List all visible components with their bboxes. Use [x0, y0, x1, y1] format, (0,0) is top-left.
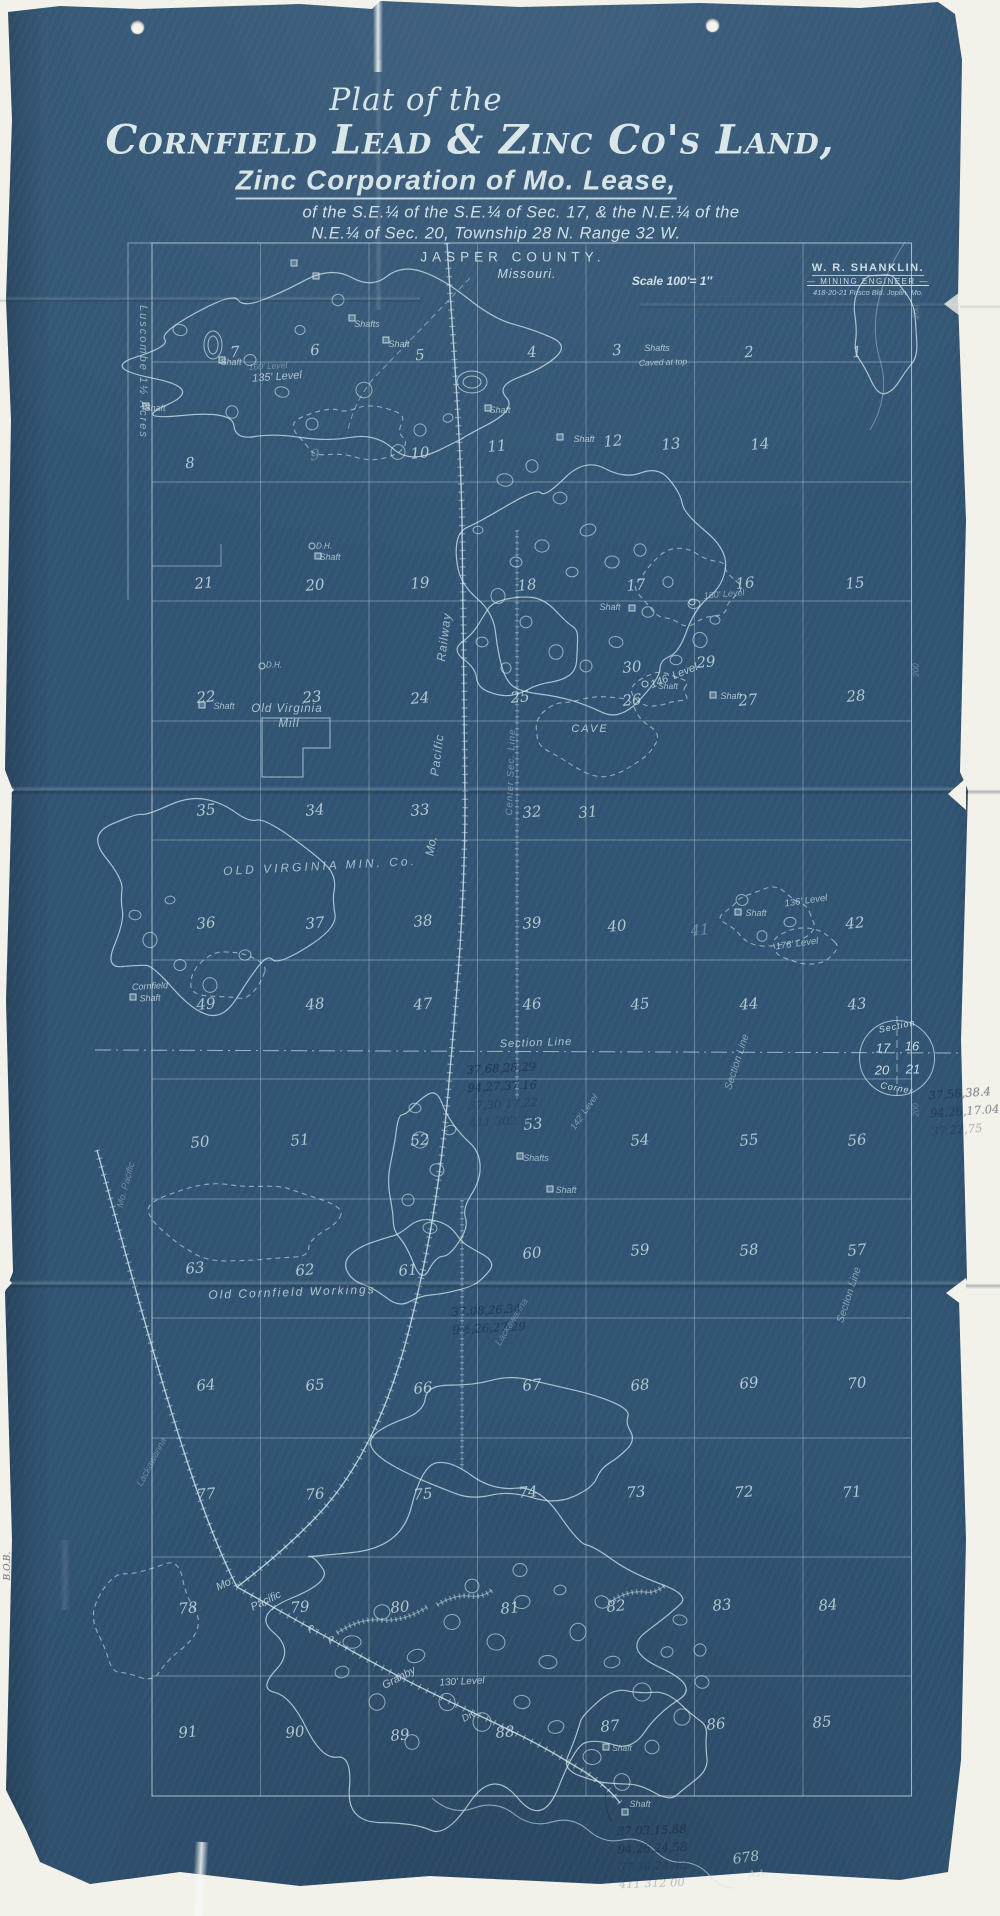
shaft-marker [291, 260, 298, 267]
map-label: Cornfield [132, 980, 169, 992]
map-title-prefix: Plat of the [329, 82, 502, 118]
map-label: Shafts [523, 1153, 549, 1163]
map-label: 160' Level [249, 360, 288, 372]
plot-number: 72 [734, 1482, 755, 1502]
shaft-marker [199, 702, 206, 709]
plot-number: 77 [196, 1484, 217, 1504]
shaft-marker [622, 1809, 629, 1816]
spine-pencil-mark: B.O.B. [2, 1552, 16, 1581]
plot-number: 84 [818, 1595, 839, 1615]
plot-number: 56 [847, 1130, 868, 1150]
plot-number: 81 [500, 1598, 521, 1618]
pencil-note: 37,08,26.349½,26,27,29 [451, 1300, 526, 1339]
map-label: D.H. [316, 542, 332, 551]
engineer-address: 418-20-21 Frisco Bld. Joplin, Mo. [778, 288, 958, 297]
map-label: Shaft [489, 405, 510, 415]
pencil-note-line: 411 312 00 [619, 1874, 689, 1894]
shaft-marker [517, 1153, 524, 1160]
plot-number: 24 [410, 688, 431, 708]
shaft-marker [603, 1744, 610, 1751]
plot-number: 91 [178, 1722, 199, 1742]
plot-number: 34 [305, 800, 326, 820]
plot-number: 44 [739, 994, 760, 1014]
shaft-marker [219, 357, 226, 364]
plot-number: 78 [178, 1598, 199, 1618]
shaft-marker [143, 403, 150, 410]
plot-number: 52 [410, 1130, 431, 1150]
plot-number: 69 [739, 1373, 760, 1393]
drillhole-marker [259, 663, 266, 670]
plot-number: 67 [522, 1375, 543, 1395]
map-label: 200 [912, 1103, 921, 1116]
map-label: Shaft [555, 1185, 576, 1195]
plot-number: 17 [626, 575, 647, 595]
plot-number: 82 [606, 1596, 627, 1616]
plot-number: 47 [413, 994, 434, 1014]
plot-number: 19 [410, 573, 431, 593]
plot-number: 25 [510, 687, 531, 707]
plot-number: 18 [517, 575, 538, 595]
plot-number: 12 [603, 431, 624, 451]
plot-number: 62 [295, 1260, 316, 1280]
plot-number: 83 [712, 1595, 733, 1615]
shaft-marker [485, 405, 492, 412]
shaft-marker [313, 273, 320, 280]
plot-number: 87 [600, 1716, 621, 1736]
plot-number: 20 [305, 575, 326, 595]
plot-number: 41 [690, 920, 711, 940]
plot-number: 59 [630, 1240, 651, 1260]
plot-number: 4 [526, 343, 537, 362]
drillhole-marker [309, 543, 316, 550]
drillhole-marker [689, 599, 696, 606]
plot-number: 86 [706, 1714, 727, 1734]
map-label: D.H. [266, 661, 282, 670]
map-label: Shafts [354, 319, 380, 329]
plot-number: 28 [846, 686, 867, 706]
plot-number: 50 [190, 1132, 211, 1152]
map-label: Shaft [612, 1743, 632, 1753]
map-label: Shaft [629, 1799, 650, 1809]
punch-hole [131, 21, 144, 34]
plot-number: 1 [851, 343, 862, 362]
plot-number: 31 [578, 802, 599, 822]
map-label: Luscombe 1½ Acres [137, 305, 149, 439]
map-label: 200 [912, 663, 921, 676]
pencil-note: 37,03,15.8894,26,24,5837,36,24.42411 312… [617, 1821, 689, 1895]
shaft-marker [349, 315, 356, 322]
legal-description-line1: of the S.E.¼ of the S.E.¼ of Sec. 17, & … [302, 204, 739, 223]
shaft-marker [547, 1186, 554, 1193]
section-corner-rosette: Section 17 16 20 21 Corner [855, 1014, 939, 1102]
legal-description-line2: N.E.¼ of Sec. 20, Township 28 N. Range 3… [311, 225, 680, 244]
map-label: 200 [912, 305, 921, 318]
plot-number: 30 [622, 657, 643, 677]
shaft-marker [315, 553, 322, 560]
shaft-marker [629, 605, 636, 612]
pencil-note: 37,68,28,2994,27,37.1637,30 17.22411 302… [466, 1058, 539, 1133]
plot-number: 21 [194, 573, 215, 593]
drillhole-marker [642, 681, 649, 688]
plot-number: 37 [305, 913, 326, 933]
map-title-main: Cornfield Lead & Zinc Co's Land, [105, 117, 834, 164]
rosette-section-17: 17 [876, 1041, 890, 1056]
plot-number: 68 [630, 1375, 651, 1395]
map-label: Shaft [573, 434, 594, 444]
plot-number: 14 [750, 434, 771, 454]
plot-number: 43 [847, 994, 868, 1014]
plot-number: 13 [661, 434, 682, 454]
map-label: CAVE [571, 723, 608, 735]
shaft-marker [383, 337, 390, 344]
plot-number: 32 [522, 802, 543, 822]
plot-number: 46 [522, 994, 543, 1014]
plot-number: 3 [611, 341, 622, 360]
plot-number: 26 [622, 690, 643, 710]
shaft-marker [557, 434, 564, 441]
map-label: Caved at top [639, 356, 688, 368]
plot-number: 85 [812, 1712, 833, 1732]
plot-number: 38 [413, 911, 434, 931]
plot-number: 71 [842, 1482, 863, 1502]
plot-number: 5 [414, 346, 425, 365]
plot-number: 51 [290, 1130, 311, 1150]
shaft-marker [710, 692, 717, 699]
plot-number: 10 [410, 443, 431, 463]
plot-number: 88 [495, 1722, 516, 1742]
map-label: Shaft [720, 691, 741, 701]
plot-number: 48 [305, 994, 326, 1014]
rosette-section-20: 20 [875, 1063, 889, 1078]
plot-number: 90 [285, 1722, 306, 1742]
plot-number: 60 [522, 1243, 543, 1263]
county-label: JASPER COUNTY. [420, 250, 605, 265]
plot-number: 70 [847, 1373, 868, 1393]
plot-number: 36 [196, 913, 217, 933]
plot-number: 54 [630, 1130, 651, 1150]
map-label: Shaft [319, 552, 340, 562]
map-label: Section Line [500, 1036, 573, 1051]
engineer-name: W. R. SHANKLIN. [812, 262, 924, 276]
plot-number: 40 [607, 916, 628, 936]
plot-number: 64 [196, 1375, 217, 1395]
plot-number: 73 [626, 1482, 647, 1502]
map-label: Shaft [139, 992, 161, 1003]
plot-number: 57 [847, 1240, 868, 1260]
plot-number: 33 [410, 800, 431, 820]
sheet-initials: A.A. [748, 1868, 768, 1880]
map-title-lease: Zinc Corporation of Mo. Lease, [236, 165, 677, 200]
plot-number: 74 [518, 1482, 539, 1502]
plot-number: 9 [309, 446, 320, 465]
plot-number: 15 [845, 573, 866, 593]
plot-number: 61 [398, 1260, 419, 1280]
scanned-blueprint-page: Plat of the Cornfield Lead & Zinc Co's L… [0, 0, 1000, 1916]
plot-number: 55 [739, 1130, 760, 1150]
engineer-role: — MINING ENGINEER — [778, 277, 958, 286]
map-label: Old Virginia [251, 703, 322, 715]
map-label: Shaft [388, 339, 409, 349]
map-label: Shaft [745, 908, 766, 918]
plot-number: 29 [696, 652, 717, 672]
plot-number: 8 [184, 454, 195, 473]
rosette-section-16: 16 [905, 1039, 919, 1054]
plot-number: 11 [487, 436, 508, 456]
plot-number: 49 [196, 994, 217, 1014]
shaft-marker [130, 994, 137, 1001]
plot-number: 45 [630, 994, 651, 1014]
pencil-note-line: 411 302.00 [469, 1112, 539, 1133]
plot-number: 75 [413, 1484, 434, 1504]
state-label: Missouri. [497, 267, 556, 281]
rosette-section-21: 21 [906, 1062, 920, 1077]
map-label: Shaft [658, 681, 678, 691]
plot-number: 66 [413, 1378, 434, 1398]
pencil-note: 37,58,38.494,26,17.0437,22,75 [928, 1083, 1000, 1141]
map-label: Shafts [644, 343, 670, 353]
plot-number: 2 [743, 343, 754, 362]
plot-number: 58 [739, 1240, 760, 1260]
plot-number: 35 [196, 800, 217, 820]
mill-and-creek [262, 242, 905, 1888]
map-label: Shaft [599, 602, 620, 612]
punch-hole [706, 19, 719, 32]
plot-number: 6 [309, 341, 320, 360]
railway-line [97, 243, 620, 1803]
engineer-stamp: W. R. SHANKLIN. — MINING ENGINEER — 418-… [778, 258, 958, 297]
plot-number: 39 [522, 913, 543, 933]
plot-number: 76 [305, 1484, 326, 1504]
plot-number: 80 [390, 1597, 411, 1617]
map-label: Shaft [213, 701, 234, 711]
scale-label: Scale 100'= 1″ [632, 274, 712, 288]
plot-number: 89 [390, 1725, 411, 1745]
map-label: Mill [278, 718, 299, 730]
plot-number: 65 [305, 1375, 326, 1395]
plot-number: 79 [290, 1597, 311, 1617]
shaft-marker [735, 909, 742, 916]
plot-number: 42 [845, 913, 866, 933]
plot-number: 63 [185, 1258, 206, 1278]
